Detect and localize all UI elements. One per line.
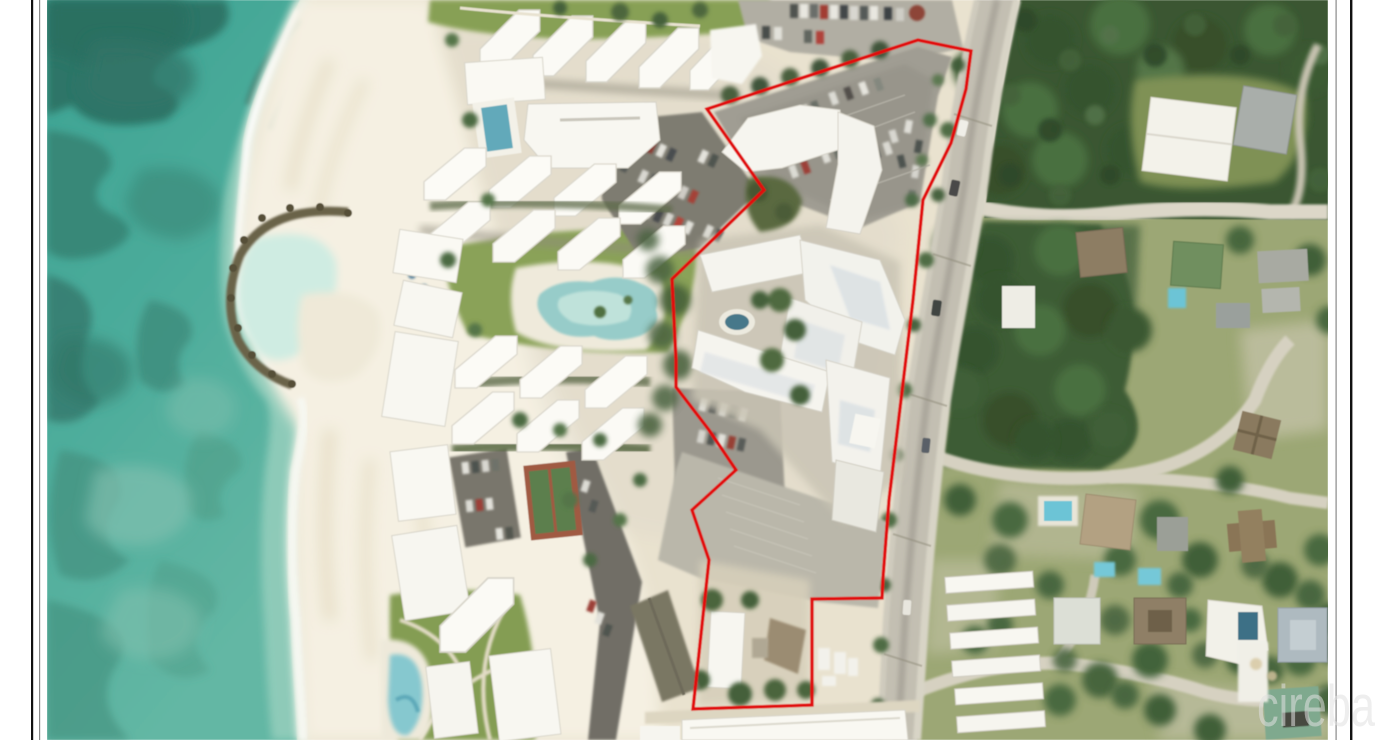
svg-text:cireba: cireba bbox=[1257, 674, 1376, 739]
